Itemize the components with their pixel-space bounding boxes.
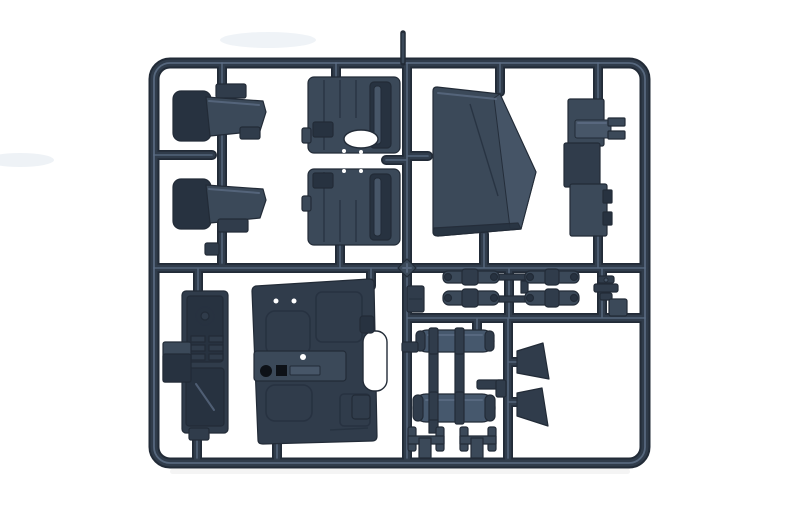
air-tank-lower — [413, 392, 495, 424]
leaf-spring-4 — [525, 289, 579, 307]
mud-flap-upper — [517, 343, 549, 379]
door-card-lower — [302, 169, 400, 245]
photo-canvas — [0, 0, 800, 530]
leaf-spring-3 — [443, 289, 499, 307]
h-bracket-left — [408, 427, 444, 458]
seat-upper — [173, 84, 266, 141]
sprue-photo — [0, 0, 800, 530]
leaf-spring-1 — [443, 269, 499, 285]
leaf-springs — [407, 269, 579, 312]
air-tank-assembly — [402, 328, 506, 433]
seat-lower — [173, 179, 266, 232]
air-tank-upper — [416, 328, 494, 354]
leaf-spring-2 — [525, 269, 579, 285]
runner-nub — [205, 243, 219, 255]
h-bracket-right — [460, 427, 496, 458]
stepped-bracket — [564, 99, 625, 236]
mud-flap-lower — [517, 388, 548, 426]
dashboard — [163, 291, 228, 440]
windscreen-panel — [433, 87, 536, 236]
door-card-upper — [302, 77, 400, 154]
cab-floor — [252, 279, 387, 444]
valve-foot-block — [609, 299, 627, 316]
